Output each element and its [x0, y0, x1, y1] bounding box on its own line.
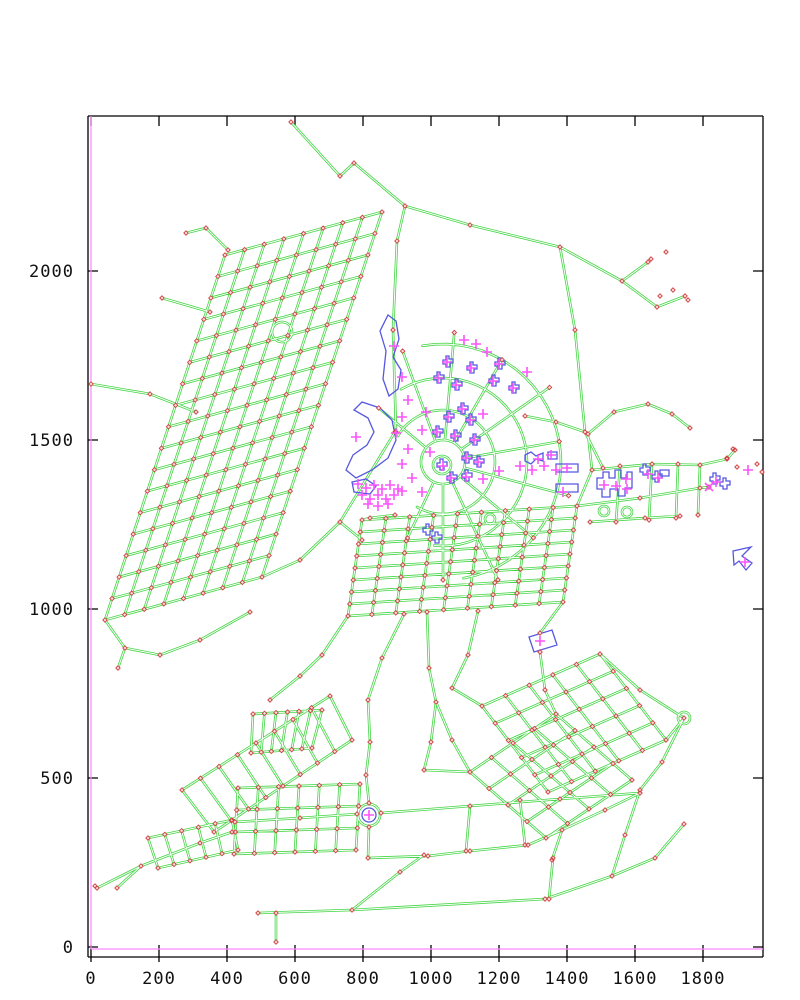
x-tick-label: 800 [346, 969, 380, 989]
map-boundary-layer [91, 116, 763, 949]
y-tick-label: 0 [63, 938, 74, 958]
x-tick-label: 1200 [477, 969, 522, 989]
roads-centerline [91, 122, 735, 942]
y-tick-label: 2000 [29, 262, 74, 282]
x-tick-label: 1400 [545, 969, 590, 989]
y-tick-label: 500 [40, 769, 74, 789]
x-tick-label: 400 [210, 969, 244, 989]
x-tick-label: 200 [142, 969, 176, 989]
y-tick-label: 1000 [29, 600, 74, 620]
x-tick-label: 1800 [681, 969, 726, 989]
x-tick-label: 600 [278, 969, 312, 989]
network-map-plot: 0200400600800100012001400160018000500100… [0, 0, 800, 1000]
y-tick-label: 1500 [29, 431, 74, 451]
x-tick-label: 1600 [613, 969, 658, 989]
x-tick-label: 0 [85, 969, 96, 989]
plot-frame [88, 116, 763, 957]
map-canvas: 0200400600800100012001400160018000500100… [0, 0, 800, 1000]
roads-layer [91, 122, 735, 942]
x-tick-label: 1000 [409, 969, 454, 989]
map-boundary-line [91, 116, 763, 949]
